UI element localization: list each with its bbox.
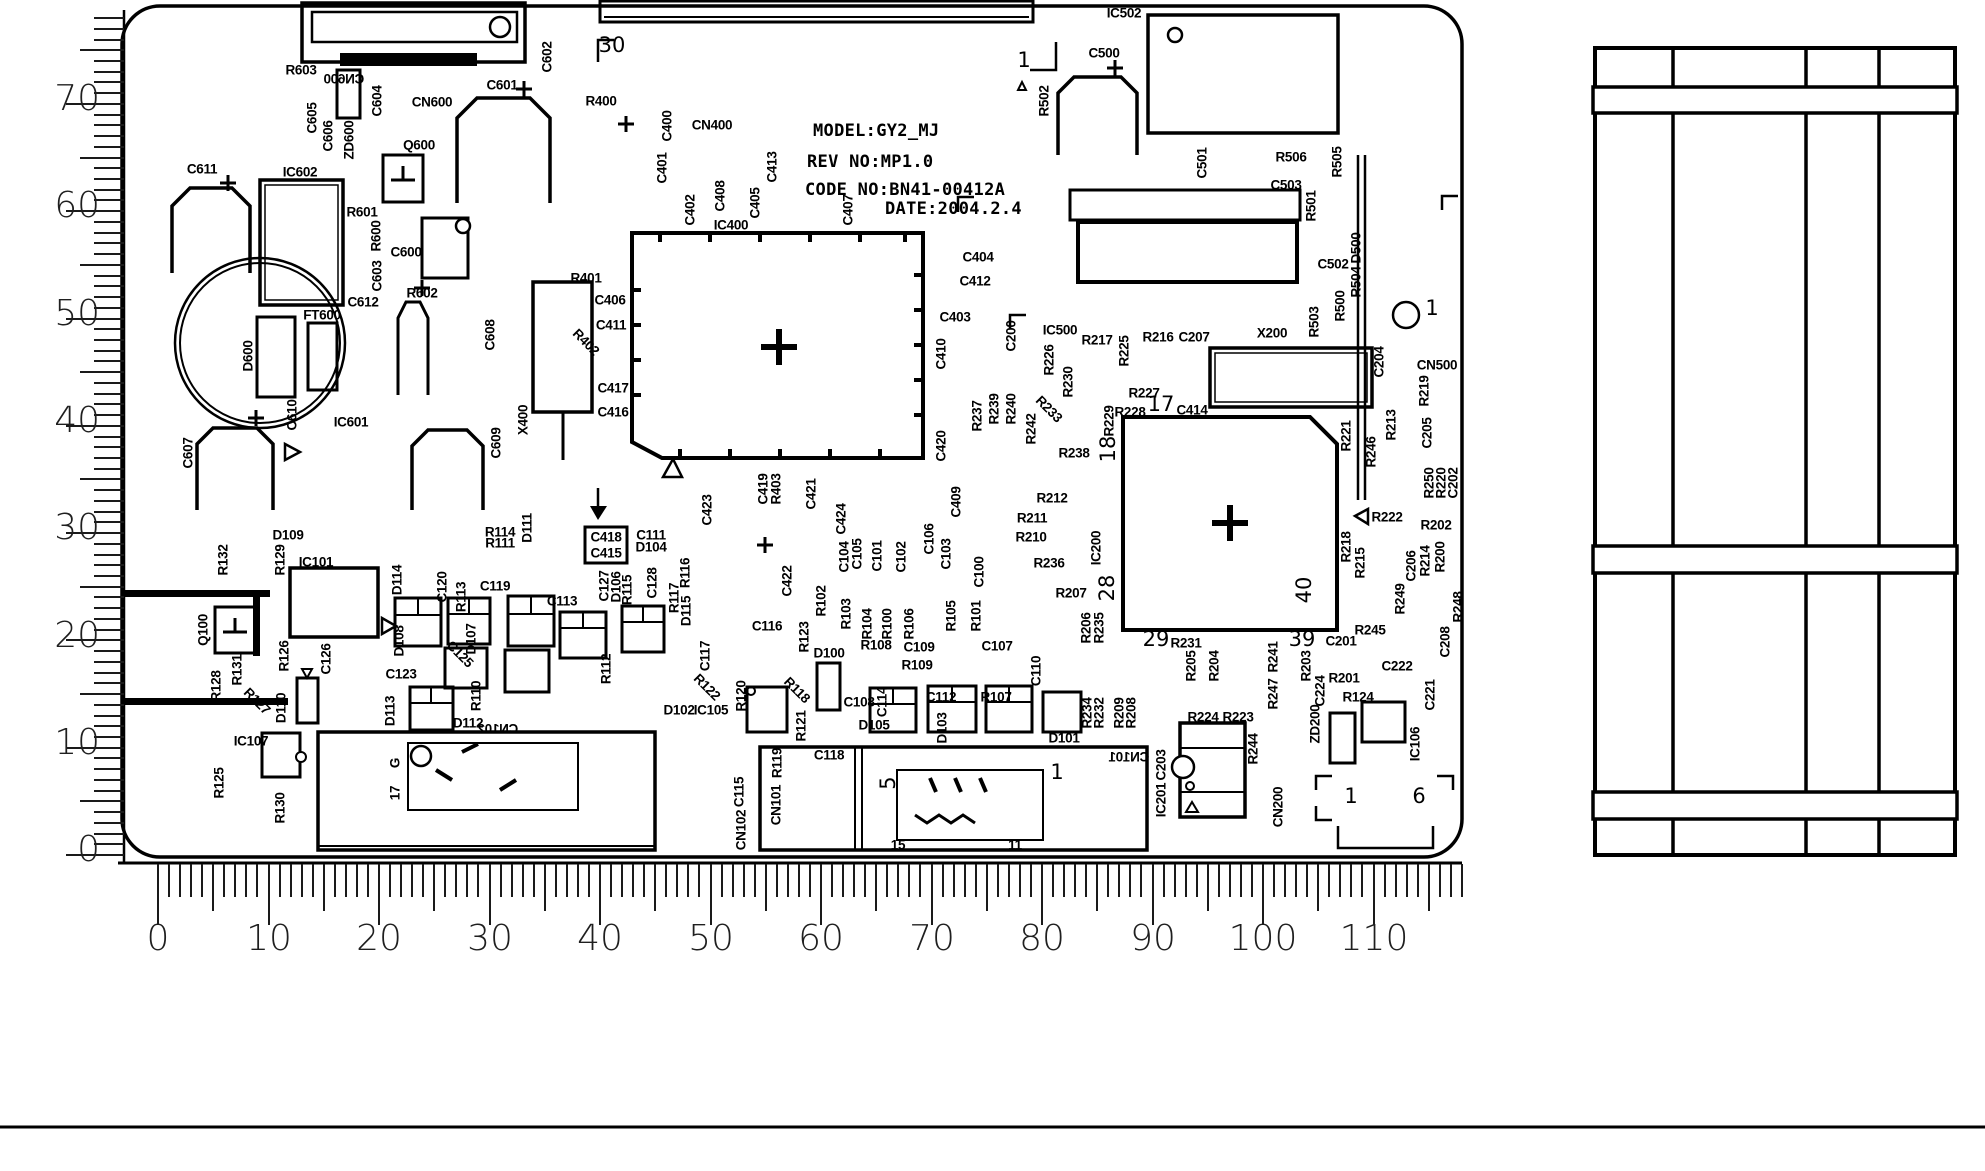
component-label-r202: R202 bbox=[1420, 518, 1451, 533]
component-label-c609: C609 bbox=[489, 427, 504, 458]
ruler-tick bbox=[94, 242, 124, 244]
ruler-tick bbox=[94, 672, 124, 674]
ruler-tick bbox=[853, 864, 855, 897]
left-ruler-number-30: 30 bbox=[30, 507, 100, 548]
component-label-c203: C203 bbox=[1154, 749, 1169, 780]
component-label-c417: C417 bbox=[597, 381, 628, 396]
ruler-tick bbox=[1262, 864, 1264, 925]
ruler-tick bbox=[908, 864, 910, 897]
component-label-r223: R223 bbox=[1222, 710, 1253, 725]
component-label-r210: R210 bbox=[1015, 530, 1046, 545]
ruler-tick bbox=[1152, 864, 1154, 925]
ruler-tick bbox=[555, 864, 557, 897]
component-label-c109: C109 bbox=[903, 640, 934, 655]
ruler-tick bbox=[654, 864, 656, 911]
ruler-tick bbox=[1439, 864, 1441, 897]
ruler-tick bbox=[577, 864, 579, 897]
ruler-tick bbox=[1174, 864, 1176, 897]
ruler-tick bbox=[94, 607, 124, 609]
component-label-c501: C501 bbox=[1195, 147, 1210, 178]
ruler-tick bbox=[400, 864, 402, 897]
component-label-cn200: CN200 bbox=[1271, 787, 1286, 828]
ruler-tick bbox=[94, 232, 124, 234]
ruler-tick bbox=[94, 339, 124, 341]
component-label-ft600: FT600 bbox=[303, 308, 341, 323]
ruler-tick bbox=[367, 864, 369, 897]
component-label-c415: C415 bbox=[590, 546, 621, 561]
component-label-x400: X400 bbox=[516, 405, 531, 435]
component-label-c608: C608 bbox=[483, 319, 498, 350]
component-label-r230: R230 bbox=[1061, 366, 1076, 397]
component-label-c207: C207 bbox=[1178, 330, 1209, 345]
component-label-c420: C420 bbox=[934, 430, 949, 461]
component-label-r208: R208 bbox=[1124, 697, 1139, 728]
component-label-c105: C105 bbox=[850, 538, 865, 569]
component-label-c404: C404 bbox=[962, 250, 993, 265]
component-label-1: 1 bbox=[1425, 296, 1438, 320]
component-label-c206: C206 bbox=[1404, 550, 1419, 581]
ruler-tick bbox=[1284, 864, 1286, 897]
component-label-c401: C401 bbox=[655, 152, 670, 183]
component-label-r217: R217 bbox=[1081, 333, 1112, 348]
component-label-r204: R204 bbox=[1207, 650, 1222, 681]
ruler-tick bbox=[256, 864, 258, 897]
ruler-tick bbox=[1041, 864, 1043, 925]
component-label-r207: R207 bbox=[1055, 586, 1086, 601]
ruler-tick bbox=[323, 864, 325, 911]
ruler-tick bbox=[94, 704, 124, 706]
ruler-tick bbox=[223, 864, 225, 897]
ruler-tick bbox=[94, 575, 124, 577]
component-label-c407: C407 bbox=[841, 194, 856, 225]
component-label-c503: C503 bbox=[1270, 178, 1301, 193]
component-label-ic602: IC602 bbox=[283, 165, 318, 180]
ruler-tick bbox=[942, 864, 944, 897]
component-label-r111: R111 bbox=[485, 536, 515, 551]
component-label-c116: C116 bbox=[752, 619, 782, 634]
ruler-tick bbox=[1339, 864, 1341, 897]
component-label-d105: D105 bbox=[858, 718, 889, 733]
ruler-tick bbox=[732, 864, 734, 897]
component-label-29: 29 bbox=[1143, 627, 1170, 651]
component-label-17: 17 bbox=[388, 786, 403, 800]
component-label-r218: R218 bbox=[1339, 531, 1354, 562]
component-label-5: 5 bbox=[876, 776, 900, 789]
component-label-c106: C106 bbox=[922, 523, 937, 554]
component-label-r119: R119 bbox=[770, 748, 785, 778]
component-label-r500: R500 bbox=[1333, 290, 1348, 321]
component-label-r123: R123 bbox=[797, 621, 812, 652]
component-label-c208: C208 bbox=[1438, 626, 1453, 657]
component-label-r124: R124 bbox=[1342, 690, 1373, 705]
component-label-r226: R226 bbox=[1042, 344, 1057, 375]
left-ruler-number-20: 20 bbox=[30, 615, 100, 656]
bottom-ruler-number-20: 20 bbox=[334, 918, 424, 959]
component-label-c500: C500 bbox=[1088, 46, 1119, 61]
component-label-c103: C103 bbox=[939, 538, 954, 569]
component-label-c600: C600 bbox=[390, 245, 421, 260]
component-label-r506: R506 bbox=[1275, 150, 1306, 165]
component-label-cn500: CN500 bbox=[1417, 358, 1458, 373]
title-code: CODE NO:BN41-00412A bbox=[805, 180, 1005, 200]
ruler-tick bbox=[743, 864, 745, 897]
component-label-c611: C611 bbox=[187, 162, 217, 177]
component-label-r222: R222 bbox=[1371, 510, 1402, 525]
left-ruler-number-10: 10 bbox=[30, 722, 100, 763]
left-ruler-number-50: 50 bbox=[30, 293, 100, 334]
ruler-tick bbox=[94, 71, 124, 73]
ruler-tick bbox=[588, 864, 590, 897]
component-label-q600: Q600 bbox=[403, 138, 435, 153]
ruler-tick bbox=[234, 864, 236, 897]
component-label-r104: R104 bbox=[860, 608, 875, 639]
ruler-tick bbox=[1328, 864, 1330, 897]
ruler-tick bbox=[94, 457, 124, 459]
component-label-r601: R601 bbox=[346, 205, 377, 220]
component-label-zd200: ZD200 bbox=[1308, 704, 1323, 743]
ruler-tick bbox=[378, 864, 380, 925]
component-label-r106: R106 bbox=[902, 608, 917, 639]
component-label-c607: C607 bbox=[181, 437, 196, 468]
component-label-6: 6 bbox=[1412, 784, 1425, 808]
component-label-c100: C100 bbox=[972, 556, 987, 587]
component-label-r126: R126 bbox=[277, 640, 292, 671]
component-label-c422: C422 bbox=[780, 565, 795, 596]
component-label-d103: D103 bbox=[935, 712, 950, 743]
component-label-c110: C110 bbox=[1029, 656, 1044, 686]
component-label-r239: R239 bbox=[987, 393, 1002, 424]
component-label-r128: R128 bbox=[209, 670, 224, 701]
ruler-tick bbox=[1229, 864, 1231, 897]
component-label-r603: R603 bbox=[285, 63, 316, 78]
component-label-ic502: IC502 bbox=[1107, 6, 1142, 21]
ruler-tick bbox=[290, 864, 292, 897]
component-label-c601: C601 bbox=[486, 78, 517, 93]
ruler-tick bbox=[80, 264, 124, 266]
component-label-c222: C222 bbox=[1381, 659, 1412, 674]
ruler-tick bbox=[422, 864, 424, 897]
component-label-d101: D101 bbox=[1048, 731, 1079, 746]
ruler-tick bbox=[931, 864, 933, 925]
component-label-r101: R101 bbox=[969, 600, 984, 631]
ruler-tick bbox=[80, 49, 124, 51]
ruler-tick bbox=[179, 864, 181, 897]
ruler-tick bbox=[1417, 864, 1419, 897]
ruler-tick bbox=[94, 39, 124, 41]
ruler-tick bbox=[610, 864, 612, 897]
component-label-c205: C205 bbox=[1420, 417, 1435, 448]
component-label-r602: R602 bbox=[406, 286, 437, 301]
component-label-r241: R241 bbox=[1266, 641, 1281, 672]
ruler-tick bbox=[1107, 864, 1109, 897]
component-label-c423: C423 bbox=[700, 494, 715, 525]
component-label-r502: R502 bbox=[1037, 85, 1052, 116]
ruler-tick bbox=[1196, 864, 1198, 897]
component-label-r200: R200 bbox=[1433, 541, 1448, 572]
component-label-ic101: IC101 bbox=[299, 555, 334, 570]
ruler-tick bbox=[94, 564, 124, 566]
component-label-c202: C202 bbox=[1446, 467, 1461, 498]
ruler-tick bbox=[1306, 864, 1308, 897]
bottom-ruler-number-110: 110 bbox=[1329, 918, 1419, 959]
component-label-r129: R129 bbox=[273, 544, 288, 575]
component-label-cn101: CN101 bbox=[769, 785, 784, 826]
ruler-tick bbox=[1140, 864, 1142, 897]
component-label-d111: D111 bbox=[520, 513, 535, 543]
component-label-c416: C416 bbox=[597, 405, 628, 420]
component-label-d104: D104 bbox=[635, 540, 666, 555]
component-label-cn400: CN400 bbox=[692, 118, 733, 133]
component-label-r132: R132 bbox=[216, 544, 231, 575]
component-label-r248: R248 bbox=[1451, 591, 1466, 622]
component-label-d113: D113 bbox=[383, 696, 398, 726]
ruler-tick bbox=[94, 124, 124, 126]
ruler-tick bbox=[1096, 864, 1098, 911]
ruler-tick bbox=[345, 864, 347, 897]
ruler-tick bbox=[80, 157, 124, 159]
bottom-ruler-number-100: 100 bbox=[1218, 918, 1308, 959]
ruler-tick bbox=[279, 864, 281, 897]
ruler-tick bbox=[94, 468, 124, 470]
component-label-c411: C411 bbox=[596, 318, 626, 333]
ruler-tick bbox=[687, 864, 689, 897]
ruler-tick bbox=[1273, 864, 1275, 897]
component-label-cn600: CN600 bbox=[412, 95, 453, 110]
component-label-r113: R113 bbox=[454, 582, 469, 612]
ruler-tick bbox=[94, 661, 124, 663]
component-label-40: 40 bbox=[1292, 577, 1316, 604]
component-label-d107: D107 bbox=[464, 623, 479, 654]
title-model: MODEL:GY2_MJ bbox=[813, 121, 939, 141]
ruler-tick bbox=[754, 864, 756, 897]
component-label-r236: R236 bbox=[1033, 556, 1064, 571]
component-label-1: 1 bbox=[1050, 760, 1063, 784]
component-label-r211: R211 bbox=[1017, 511, 1047, 526]
component-label-r214: R214 bbox=[1418, 545, 1433, 576]
component-label-r229: R229 bbox=[1102, 405, 1117, 436]
component-label-r110: R110 bbox=[469, 681, 484, 711]
component-label-r121: R121 bbox=[794, 710, 809, 741]
component-label-ic201: IC201 bbox=[1154, 783, 1169, 818]
component-label-ic106: IC106 bbox=[1408, 727, 1423, 762]
component-label-c403: C403 bbox=[939, 310, 970, 325]
ruler-tick bbox=[522, 864, 524, 897]
bottom-ruler-number-10: 10 bbox=[224, 918, 314, 959]
left-ruler-number-60: 60 bbox=[30, 185, 100, 226]
component-label-r235: R235 bbox=[1092, 612, 1107, 643]
component-label-r221: R221 bbox=[1339, 420, 1354, 451]
ruler-tick bbox=[94, 446, 124, 448]
title-rev: REV NO:MP1.0 bbox=[807, 152, 933, 172]
ruler-tick bbox=[94, 500, 124, 502]
ruler-tick bbox=[1085, 864, 1087, 897]
ruler-tick bbox=[94, 393, 124, 395]
component-label-r240: R240 bbox=[1004, 393, 1019, 424]
ruler-tick bbox=[765, 864, 767, 911]
component-label-d110: D110 bbox=[274, 693, 289, 723]
ruler-tick bbox=[80, 800, 124, 802]
component-label-ic200: IC200 bbox=[1089, 531, 1104, 566]
component-label-c412: C412 bbox=[959, 274, 990, 289]
ruler-tick bbox=[1373, 864, 1375, 925]
component-label-d500: D500 bbox=[1349, 232, 1364, 263]
ruler-tick bbox=[897, 864, 899, 897]
component-label-c117: C117 bbox=[698, 641, 713, 671]
component-label-r401: R401 bbox=[570, 271, 601, 286]
component-label-c118: C118 bbox=[814, 748, 844, 763]
ruler-tick bbox=[94, 768, 124, 770]
ruler-tick bbox=[168, 864, 170, 897]
ruler-tick bbox=[80, 371, 124, 373]
ruler-tick bbox=[94, 682, 124, 684]
component-label-c112: C112 bbox=[926, 690, 956, 705]
component-label-d100: D100 bbox=[813, 646, 844, 661]
component-label-r125: R125 bbox=[212, 767, 227, 798]
ruler-tick bbox=[94, 489, 124, 491]
component-label-r501: R501 bbox=[1304, 190, 1319, 221]
ruler-tick bbox=[1052, 864, 1054, 897]
ruler-tick bbox=[875, 864, 877, 911]
title-date: DATE:2004.2.4 bbox=[885, 199, 1022, 219]
ruler-tick bbox=[455, 864, 457, 897]
component-label-c502: C502 bbox=[1317, 257, 1348, 272]
ruler-tick bbox=[820, 864, 822, 925]
component-label-r201: R201 bbox=[1328, 671, 1359, 686]
ruler-tick bbox=[212, 864, 214, 911]
component-label-c410: C410 bbox=[934, 338, 949, 369]
component-label-c127: C127 bbox=[597, 570, 612, 601]
ruler-tick bbox=[1461, 864, 1463, 897]
component-label-r247: R247 bbox=[1266, 678, 1281, 709]
ruler-tick bbox=[94, 779, 124, 781]
ruler-tick bbox=[776, 864, 778, 897]
component-label-c602: C602 bbox=[540, 41, 555, 72]
component-label-r107: R107 bbox=[980, 690, 1011, 705]
component-label-c424: C424 bbox=[834, 503, 849, 534]
component-label-17: 17 bbox=[1148, 392, 1175, 416]
component-label-c107: C107 bbox=[981, 639, 1012, 654]
ruler-tick bbox=[94, 146, 124, 148]
ruler-tick bbox=[809, 864, 811, 897]
component-label-39: 39 bbox=[1289, 627, 1316, 651]
component-label-c108: C108 bbox=[843, 695, 874, 710]
ruler-tick bbox=[201, 864, 203, 897]
component-label-c102: C102 bbox=[894, 541, 909, 572]
component-label-d600: D600 bbox=[241, 340, 256, 371]
ruler-tick bbox=[94, 811, 124, 813]
component-label-r225: R225 bbox=[1117, 335, 1132, 366]
component-label-r400: R400 bbox=[585, 94, 616, 109]
bottom-ruler-number-70: 70 bbox=[887, 918, 977, 959]
component-label-r103: R103 bbox=[839, 598, 854, 629]
component-label-d102: D102 bbox=[663, 703, 694, 718]
ruler-tick bbox=[94, 360, 124, 362]
component-label-cn600: CN600 bbox=[324, 72, 365, 87]
ruler-tick bbox=[643, 864, 645, 897]
ruler-tick bbox=[245, 864, 247, 897]
component-label-c126: C126 bbox=[319, 643, 334, 674]
component-label-c605: C605 bbox=[305, 102, 320, 133]
component-label-28: 28 bbox=[1095, 575, 1119, 602]
component-label-c224: C224 bbox=[1313, 675, 1328, 706]
ruler-tick bbox=[190, 864, 192, 897]
ruler-tick bbox=[80, 586, 124, 588]
component-label-r215: R215 bbox=[1353, 547, 1368, 578]
component-label-r224: R224 bbox=[1187, 710, 1218, 725]
ruler-tick bbox=[1251, 864, 1253, 897]
bottom-ruler-number-40: 40 bbox=[555, 918, 645, 959]
component-label-ic400: IC400 bbox=[714, 218, 749, 233]
component-label-r212: R212 bbox=[1036, 491, 1067, 506]
ruler-tick bbox=[1074, 864, 1076, 897]
ruler-tick bbox=[94, 17, 124, 19]
component-label-r505: R505 bbox=[1330, 146, 1345, 177]
component-label-x200: X200 bbox=[1257, 326, 1287, 341]
component-label-c128: C128 bbox=[645, 567, 660, 598]
component-label-r504: R504 bbox=[1349, 266, 1364, 297]
component-label-r503: R503 bbox=[1307, 306, 1322, 337]
component-label-r105: R105 bbox=[944, 600, 959, 631]
ruler-tick bbox=[1240, 864, 1242, 897]
component-label-r102: R102 bbox=[814, 585, 829, 616]
component-label-r112: R112 bbox=[599, 654, 614, 684]
component-label-r231: R231 bbox=[1170, 636, 1201, 651]
component-label-c604: C604 bbox=[370, 85, 385, 116]
component-label-g: G bbox=[388, 758, 403, 768]
bottom-ruler-number-50: 50 bbox=[666, 918, 756, 959]
ruler-tick bbox=[544, 864, 546, 911]
ruler-tick bbox=[312, 864, 314, 897]
component-label-r244: R244 bbox=[1246, 733, 1261, 764]
component-label-1: 1 bbox=[1344, 784, 1357, 808]
ruler-tick bbox=[566, 864, 568, 897]
left-ruler-number-40: 40 bbox=[30, 400, 100, 441]
component-label-c113: C113 bbox=[547, 594, 577, 609]
component-label-c408: C408 bbox=[713, 180, 728, 211]
ruler-tick bbox=[1395, 864, 1397, 897]
ruler-tick bbox=[94, 60, 124, 62]
component-label-c405: C405 bbox=[748, 187, 763, 218]
ruler-tick bbox=[964, 864, 966, 897]
component-label-r216: R216 bbox=[1142, 330, 1173, 345]
bottom-ruler-number-80: 80 bbox=[997, 918, 1087, 959]
bottom-ruler-number-0: 0 bbox=[113, 918, 203, 959]
component-label-r249: R249 bbox=[1393, 583, 1408, 614]
pcb-assembly-drawing: MODEL:GY2_MJ REV NO:MP1.0 CODE NO:BN41-0… bbox=[0, 0, 1985, 1171]
component-label-c123: C123 bbox=[385, 667, 416, 682]
ruler-tick bbox=[301, 864, 303, 897]
component-label-r100: R100 bbox=[880, 608, 895, 639]
ruler-tick bbox=[1317, 864, 1319, 911]
ruler-tick bbox=[1118, 864, 1120, 897]
component-label-c201: C201 bbox=[1325, 634, 1356, 649]
component-label-r213: R213 bbox=[1384, 409, 1399, 440]
ruler-tick bbox=[433, 864, 435, 911]
component-label-c409: C409 bbox=[949, 486, 964, 517]
bottom-ruler-number-60: 60 bbox=[776, 918, 866, 959]
component-label-15: 15 bbox=[891, 838, 905, 853]
ruler-tick bbox=[1129, 864, 1131, 897]
bottom-ruler-number-90: 90 bbox=[1108, 918, 1198, 959]
ruler-tick bbox=[1163, 864, 1165, 897]
ruler-tick bbox=[1428, 864, 1430, 911]
component-label-ic500: IC500 bbox=[1043, 323, 1078, 338]
component-label-r130: R130 bbox=[273, 792, 288, 823]
ruler-tick bbox=[599, 864, 601, 925]
component-label-c402: C402 bbox=[683, 194, 698, 225]
ruler-tick bbox=[157, 864, 159, 925]
component-label-r109: R109 bbox=[901, 658, 932, 673]
